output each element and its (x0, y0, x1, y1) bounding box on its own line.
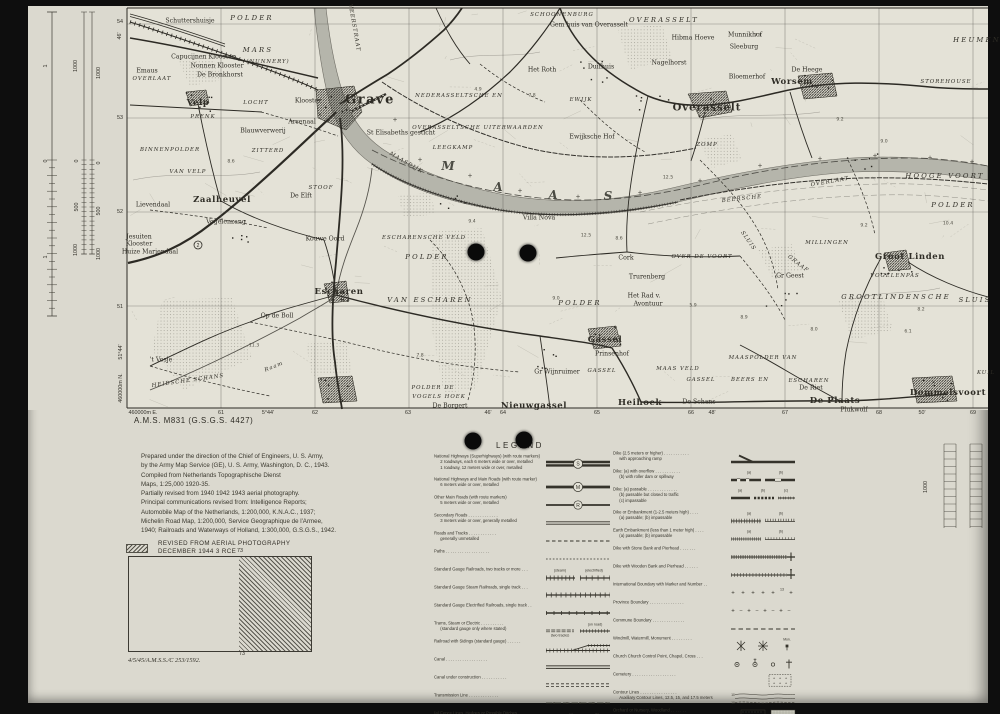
svg-text:13: 13 (780, 587, 784, 591)
legend-item-label: Contour Lines . . . . . . . . . . . . . … (613, 690, 694, 701)
svg-text:+: + (761, 591, 765, 597)
legend-item: Dike with Wooden Bank and Pierhead . . .… (613, 564, 797, 580)
legend-symbol-church (729, 654, 797, 670)
legend-item-label: Secondary Roads . . . . . . . . . . . . … (434, 513, 511, 524)
legend-item: Earth Embankment (less than 1 meter high… (613, 528, 797, 544)
legend-item-label: International Boundary with Marker and N… (613, 582, 694, 588)
legend-symbol-trans (544, 693, 612, 709)
credits-line: 1940; Railroads and Waterways of Holland… (141, 526, 336, 535)
legend-item-label: Other Main Roads (with route markers)5 m… (434, 495, 511, 506)
legend-item-label: National Highways and Main Roads (with r… (434, 477, 511, 488)
revision-title: REVISED FROM AERIAL PHOTOGRAPHY DECEMBER… (158, 540, 290, 556)
legend-item: Windmill, Watermill, Monument . . . . . … (613, 636, 797, 652)
print-code: 4/5/45/A.M.S.S./C 253/1592. (128, 657, 200, 664)
svg-text:(a): (a) (747, 471, 751, 475)
svg-text:2: 2 (197, 243, 200, 249)
legend-symbol-comm (729, 618, 797, 634)
revision-label-top: 73 (237, 548, 243, 554)
map-canvas: 2 (28, 6, 988, 410)
svg-text:+: + (789, 591, 793, 597)
legend-title: LEGEND (496, 441, 544, 450)
legend-item: Secondary Roads . . . . . . . . . . . . … (434, 513, 612, 529)
revision-title-line2: DECEMBER 1944 3 RCE (158, 548, 290, 556)
credits-line: Compiled from Netherlands Topographische… (141, 471, 336, 480)
legend-symbol-tram: (on road)(two tracks) (544, 621, 612, 637)
sheet-series-number: A.M.S. M831 (G.S.G.S. 4427) (134, 416, 253, 425)
svg-text:(b): (b) (779, 512, 783, 516)
legend-item: Commune Boundary . . . . . . . . . . . .… (613, 618, 797, 634)
legend-item-label: Commune Boundary . . . . . . . . . . . .… (613, 618, 694, 624)
legend-item-label: Cemetery . . . . . . . . . . . . . . . .… (613, 672, 694, 678)
legend-item-label: Canal . . . . . . . . . . . . . . . . . … (434, 657, 511, 663)
legend-item: Trams, Steam or Electric . . . . . . . .… (434, 621, 612, 637)
legend-item: National Highways (Superhighways) (with … (434, 454, 612, 475)
legend-column-left: National Highways (Superhighways) (with … (434, 454, 612, 714)
credits-line: Automobile Map of the Netherlands, 1:200… (141, 508, 336, 517)
legend-item: Church Church Control Point, Chapel, Cro… (613, 654, 797, 670)
legend-item-label: Church Church Control Point, Chapel, Cro… (613, 654, 694, 660)
legend-item-label: Standard Gauge Steam Railroads, single t… (434, 585, 511, 591)
legend-item-label: Railroad with Sidings (standard gauge) .… (434, 639, 511, 645)
legend-item: Cemetery . . . . . . . . . . . . . . . .… (613, 672, 797, 688)
svg-text:(electrified): (electrified) (585, 569, 603, 573)
legend-item: Standard Gauge Steam Railroads, single t… (434, 585, 612, 601)
legend-item: Orchard or Nursery, Woodland . . . . . .… (613, 708, 797, 714)
credits-line: Principal communications revised from: I… (141, 498, 336, 507)
svg-text:(c): (c) (784, 489, 788, 493)
legend-item: International Boundary with Marker and N… (613, 582, 797, 598)
svg-text:(steam): (steam) (554, 569, 566, 573)
legend-symbol-track (544, 531, 612, 547)
legend-symbol-earth-ab: (a)(b) (729, 528, 797, 544)
legend-item-label: Dike with Stone Bank and Pierhead . . . … (613, 546, 694, 552)
svg-text:+: + (731, 609, 735, 615)
svg-text:R: R (576, 503, 580, 509)
svg-text:+: + (771, 591, 775, 597)
right-margin-ruler (938, 440, 990, 535)
svg-text:+: + (779, 609, 783, 615)
credits-block: Prepared under the direction of the Chie… (141, 452, 336, 536)
svg-text:(a): (a) (747, 530, 751, 534)
credits-line: Partially revised from 1940 1942 1943 ae… (141, 489, 336, 498)
legend-item: National Highways and Main Roads (with r… (434, 477, 612, 493)
revision-hatch-swatch (126, 544, 148, 553)
revision-hatched-area (239, 557, 311, 651)
credits-line: Maps, 1:25,000 1920-35. (141, 480, 336, 489)
svg-text:+: + (785, 681, 788, 686)
legend-item-label: Trams, Steam or Electric . . . . . . . .… (434, 621, 511, 632)
legend-symbol-dike-ramp (729, 451, 797, 467)
svg-text:+: + (779, 681, 782, 686)
legend-item-label: Province Boundary . . . . . . . . . . . … (613, 600, 694, 606)
svg-text:Mon.: Mon. (783, 638, 791, 642)
legend-symbol-road-s: S (544, 454, 612, 470)
legend-item: Railroad with Sidings (standard gauge) .… (434, 639, 612, 655)
svg-text:+: + (747, 609, 751, 615)
legend-item-label: Canal under construction . . . . . . . .… (434, 675, 511, 681)
legend-item: Canal under construction . . . . . . . .… (434, 675, 612, 691)
legend-symbol-rr2: (steam)(electrified) (544, 567, 612, 583)
credits-line: by the Army Map Service (GE), U. S. Army… (141, 461, 336, 470)
legend-item-label: Orchard or Nursery, Woodland . . . . . .… (613, 708, 694, 714)
legend-item-label: Earth Embankment (less than 1 meter high… (613, 528, 694, 539)
legend-item-label: Standard Gauge Railroads, two tracks or … (434, 567, 511, 573)
legend-symbol-rr-elec (544, 603, 612, 619)
legend-item: Other Main Roads (with route markers)5 m… (434, 495, 612, 511)
legend-item: Paths . . . . . . . . . . . . . . . . . … (434, 549, 612, 565)
legend-item-label: Paths . . . . . . . . . . . . . . . . . … (434, 549, 511, 555)
legend-item: Dike with Stone Bank and Pierhead . . . … (613, 546, 797, 562)
legend-symbol-canal-uc (544, 675, 612, 691)
legend-symbol-sidings (544, 639, 612, 655)
legend-symbol-rr-steam (544, 585, 612, 601)
legend-symbol-wood-pier (729, 564, 797, 580)
legend-item-label: Standard Gauge Electrified Railroads, si… (434, 603, 511, 609)
legend-item: Transmission Line . . . . . . . . . . . … (434, 693, 612, 709)
legend-symbol-stone-pier (729, 546, 797, 562)
svg-text:(a): (a) (738, 489, 742, 493)
svg-text:–: – (756, 608, 759, 614)
svg-text:+: + (731, 591, 735, 597)
legend-symbol-prov: ++++–––– (729, 600, 797, 616)
legend-symbol-orchard (729, 708, 797, 714)
legend-item-label: Transmission Line . . . . . . . . . . . … (434, 693, 511, 699)
legend-item: Standard Gauge Electrified Railroads, si… (434, 603, 612, 619)
legend-symbol-intl: +++++13+ (729, 582, 797, 598)
legend-symbol-road-m: M (544, 477, 612, 493)
legend-item: Canal . . . . . . . . . . . . . . . . . … (434, 657, 612, 673)
scanned-map-photo: 2 A.M.S. M831 (G.S.G.S. 4427) Prepared u… (0, 0, 1000, 714)
legend-item: Dike: (a) with overflow . . . . . . . . … (613, 469, 797, 485)
svg-text:(b): (b) (779, 530, 783, 534)
svg-text:+: + (763, 609, 767, 615)
svg-text:(on road): (on road) (588, 623, 603, 627)
legend-item: Dike or Embankment (1-2.5 meters high) .… (613, 510, 797, 526)
svg-text:10: 10 (731, 701, 735, 705)
revision-label-bottom: 73 (239, 651, 245, 657)
legend-symbol-mills: Mon. (729, 636, 797, 652)
legend-symbol-emb-ab: (a)(b) (729, 510, 797, 526)
svg-text:+: + (773, 681, 776, 686)
legend-item: Province Boundary . . . . . . . . . . . … (613, 600, 797, 616)
svg-text:+: + (741, 591, 745, 597)
revision-index-box (128, 556, 312, 652)
legend-item-label: National Highways (Superhighways) (with … (434, 454, 511, 471)
legend-item-label: Dike or Embankment (1-2.5 meters high) .… (613, 510, 694, 521)
svg-text:(a): (a) (747, 512, 751, 516)
legend-column-right: Dike (2.5 meters or higher) . . . . . . … (613, 451, 797, 714)
legend-item: Dike: (a) passable . . . . . . . . . . .… (613, 487, 797, 508)
legend-item-label: Dike with Wooden Bank and Pierhead . . .… (613, 564, 694, 570)
credits-line: Michelin Road Map, 1:200,000, Service Ge… (141, 517, 336, 526)
legend-symbol-dike-ab: (a)(b) (729, 469, 797, 485)
legend-item-label: Roads and Tracks . . . . . . . . . . . .… (434, 531, 511, 542)
legend-symbol-road-sec (544, 513, 612, 529)
legend-symbol-road-r: R (544, 495, 612, 511)
legend-item: Contour Lines . . . . . . . . . . . . . … (613, 690, 797, 706)
legend-item-label: Dike: (a) with overflow . . . . . . . . … (613, 469, 694, 480)
svg-text:(b): (b) (779, 471, 783, 475)
legend-item-label: Dike (2.5 meters or higher) . . . . . . … (613, 451, 694, 462)
svg-text:–: – (772, 608, 775, 614)
legend-item-label: Dike: (a) passable . . . . . . . . . . .… (613, 487, 694, 504)
legend-item: Dike (2.5 meters or higher) . . . . . . … (613, 451, 797, 467)
legend-symbol-dike-abc: (a)(b)(c) (729, 487, 797, 503)
svg-text:10: 10 (731, 693, 735, 697)
legend-symbol-canal (544, 657, 612, 673)
legend-item-label: Windmill, Watermill, Monument . . . . . … (613, 636, 694, 642)
svg-text:–: – (788, 608, 791, 614)
legend-symbol-path (544, 549, 612, 565)
legend-symbol-contours: 1010 (729, 690, 797, 706)
svg-text:(b): (b) (761, 489, 765, 493)
svg-text:–: – (740, 608, 743, 614)
revision-title-line1: REVISED FROM AERIAL PHOTOGRAPHY (158, 540, 290, 548)
legend-item: Roads and Tracks . . . . . . . . . . . .… (434, 531, 612, 547)
svg-text:+: + (751, 591, 755, 597)
legend-symbol-cemetery: ++++++ (729, 672, 797, 688)
credits-line: Prepared under the direction of the Chie… (141, 452, 336, 461)
legend-item: Standard Gauge Railroads, two tracks or … (434, 567, 612, 583)
svg-text:M: M (576, 485, 580, 491)
svg-text:(two tracks): (two tracks) (551, 634, 570, 637)
